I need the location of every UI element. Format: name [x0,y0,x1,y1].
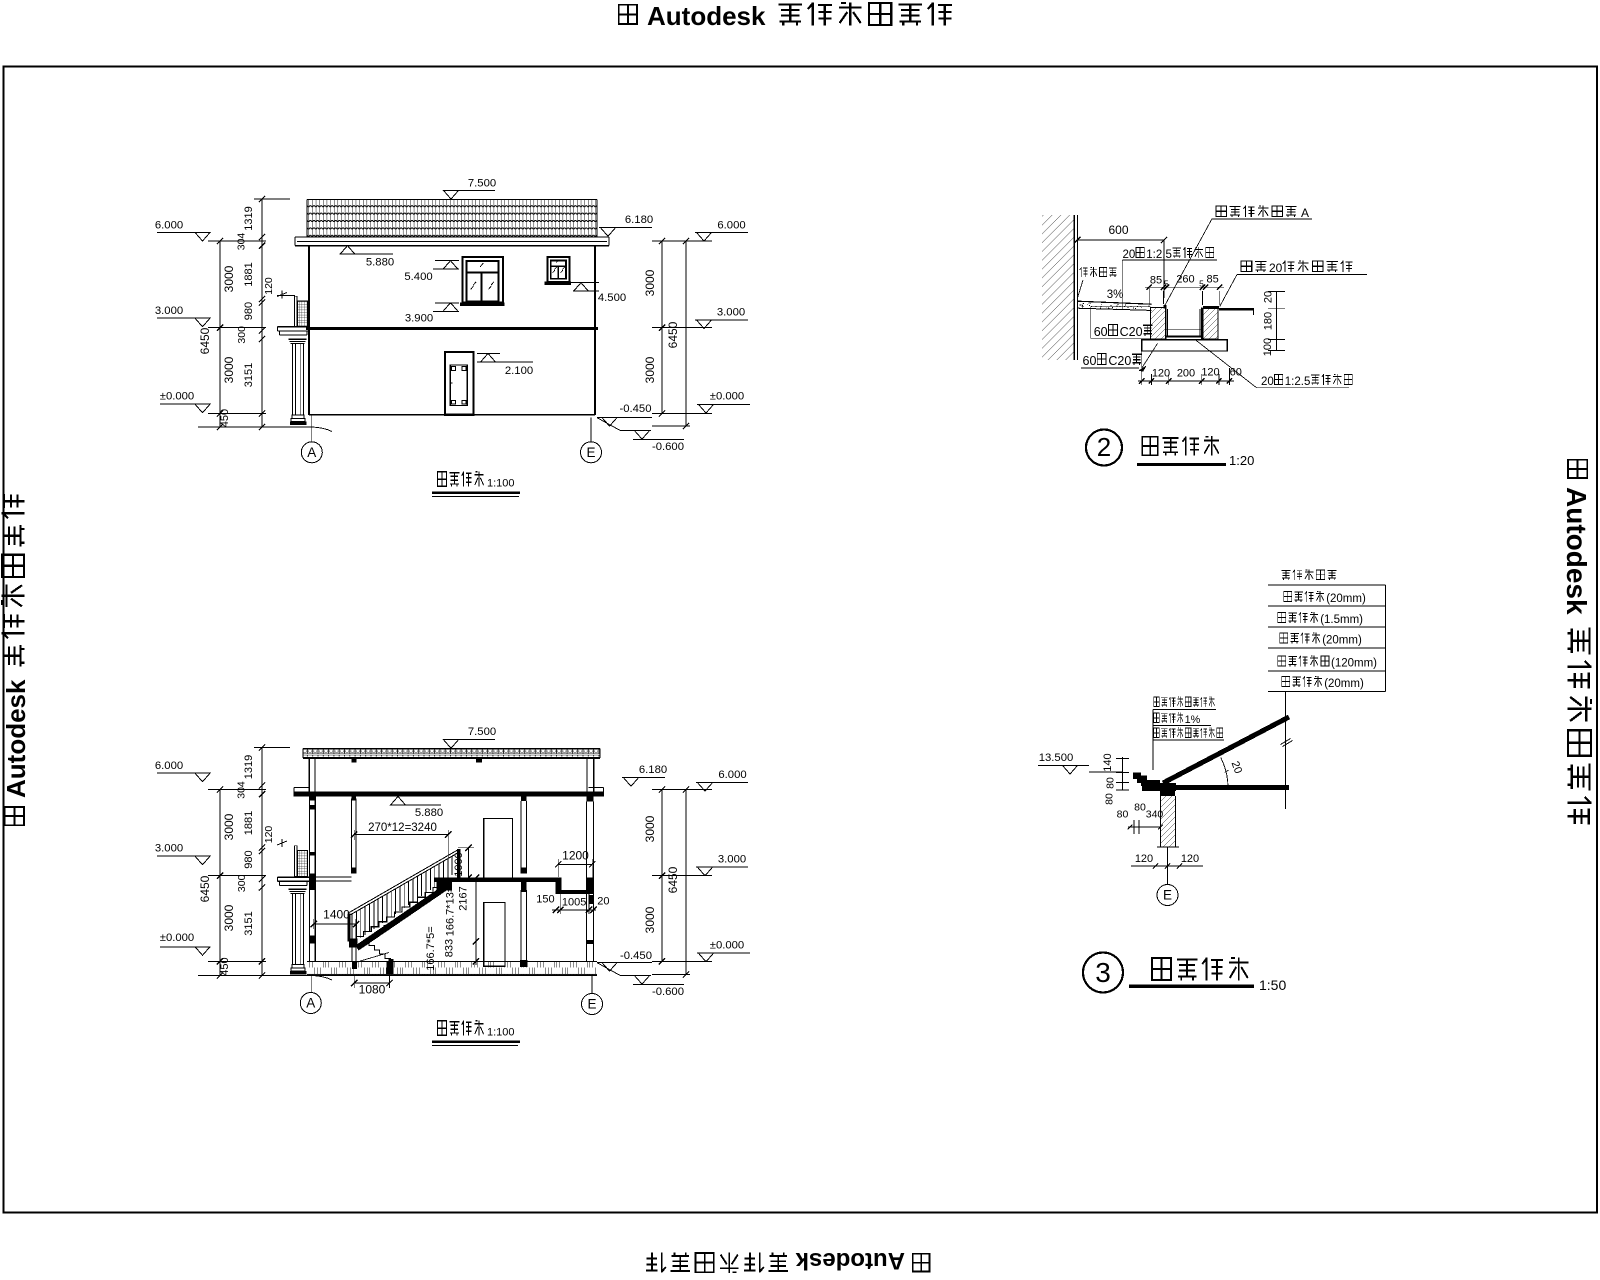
svg-text:6.000: 6.000 [717,220,745,232]
svg-text:60: 60 [1094,325,1108,339]
svg-text:20: 20 [1269,261,1283,275]
svg-text:E: E [586,445,595,460]
svg-text:60: 60 [1083,354,1097,368]
svg-text:(20mm): (20mm) [1322,635,1362,647]
svg-text:1:2.5: 1:2.5 [1146,249,1172,261]
svg-text:±0.000: ±0.000 [160,932,194,944]
svg-text:1:20: 1:20 [1229,453,1254,468]
svg-text:(1.5mm): (1.5mm) [1320,614,1363,626]
svg-text:3000: 3000 [222,356,236,383]
svg-text:3151: 3151 [243,363,255,387]
svg-text:85: 85 [1206,274,1218,286]
svg-text:5.880: 5.880 [415,807,443,819]
svg-text:6.000: 6.000 [155,760,183,772]
svg-text:1:50: 1:50 [1259,977,1286,993]
svg-text:80: 80 [1105,777,1117,789]
svg-text:270*12=3240: 270*12=3240 [368,822,437,834]
svg-text:20: 20 [1263,291,1275,303]
svg-text:6450: 6450 [666,866,680,893]
svg-text:85: 85 [1150,275,1162,287]
svg-text:120: 120 [1135,853,1153,865]
svg-text:6.180: 6.180 [639,764,667,776]
svg-text:304: 304 [236,233,248,251]
svg-text:A: A [306,996,315,1011]
svg-text:3000: 3000 [222,813,236,840]
svg-text:1%: 1% [1185,714,1201,726]
svg-text:6.180: 6.180 [625,214,653,226]
svg-text:7.500: 7.500 [468,178,496,190]
svg-text:A: A [1301,206,1309,220]
svg-text:3151: 3151 [243,911,255,935]
svg-text:(120mm): (120mm) [1331,658,1377,670]
svg-text:1400: 1400 [323,908,350,922]
svg-text:140: 140 [1102,753,1114,771]
svg-text:Autodesk: Autodesk [1,679,31,798]
svg-text:13.500: 13.500 [1039,752,1074,764]
svg-text:1200: 1200 [562,849,589,863]
svg-text:1881: 1881 [243,262,255,286]
svg-text:3000: 3000 [643,356,657,383]
svg-text:1080: 1080 [359,983,386,997]
svg-text:2.100: 2.100 [505,365,533,377]
svg-text:600: 600 [1108,223,1128,237]
svg-text:120: 120 [263,277,275,295]
svg-text:6450: 6450 [198,875,212,902]
svg-text:2167: 2167 [458,886,470,910]
svg-text:120: 120 [1152,368,1170,380]
svg-text:1881: 1881 [243,811,255,835]
svg-text:300: 300 [236,874,248,892]
svg-text:3000: 3000 [222,265,236,292]
svg-text:E: E [1163,888,1172,903]
svg-text:2: 2 [1097,432,1111,462]
svg-text:A: A [307,445,316,460]
svg-text:-0.450: -0.450 [619,403,651,415]
svg-text:3.900: 3.900 [405,313,433,325]
svg-text:1:100: 1:100 [487,478,515,490]
svg-text:3.000: 3.000 [718,854,746,866]
svg-text:(20mm): (20mm) [1324,678,1364,690]
svg-text:Autodesk: Autodesk [1561,487,1592,615]
svg-text:±0.000: ±0.000 [160,391,194,403]
svg-text:3.000: 3.000 [717,307,745,319]
svg-text:1000: 1000 [453,852,465,876]
svg-text:3.000: 3.000 [155,843,183,855]
svg-text:980: 980 [243,302,255,320]
svg-text:5.880: 5.880 [366,257,394,269]
svg-text:304: 304 [236,781,248,799]
svg-text:5: 5 [1199,279,1204,289]
svg-text:6.000: 6.000 [718,769,746,781]
svg-text:-0.600: -0.600 [652,986,684,998]
svg-text:3000: 3000 [643,906,657,933]
svg-text:-0.600: -0.600 [652,441,684,453]
svg-text:1319: 1319 [243,755,255,779]
svg-text:-0.450: -0.450 [620,950,652,962]
svg-text:C20: C20 [1108,354,1131,368]
svg-text:3000: 3000 [222,904,236,931]
svg-text:833: 833 [444,939,456,957]
svg-text:150: 150 [536,894,554,906]
svg-text:3%: 3% [1107,289,1124,301]
svg-text:1319: 1319 [243,206,255,230]
svg-text:6450: 6450 [666,321,680,348]
svg-text:C20: C20 [1120,325,1143,339]
svg-text:±0.000: ±0.000 [710,940,744,952]
svg-text:5.400: 5.400 [404,271,432,283]
svg-text:5: 5 [1164,279,1169,289]
svg-text:7.500: 7.500 [468,726,496,738]
svg-text:20: 20 [597,896,609,908]
svg-text:80: 80 [1117,809,1129,821]
svg-text:200: 200 [1177,368,1195,380]
svg-text:(20mm): (20mm) [1326,593,1366,605]
svg-text:120: 120 [263,826,275,844]
svg-text:80: 80 [1104,793,1116,805]
svg-text:3000: 3000 [643,269,657,296]
svg-text:1:100: 1:100 [487,1027,515,1039]
svg-text:3: 3 [1095,957,1111,988]
svg-text:300: 300 [236,326,248,344]
svg-text:Autodesk: Autodesk [795,1247,905,1274]
svg-text:±0.000: ±0.000 [710,391,744,403]
svg-text:20: 20 [1261,376,1274,388]
svg-text:100: 100 [1262,338,1274,356]
svg-text:120: 120 [1201,367,1219,379]
svg-text:4.500: 4.500 [598,292,626,304]
svg-text:80: 80 [1134,802,1146,814]
svg-text:1005: 1005 [562,897,586,909]
svg-text:6.000: 6.000 [155,220,183,232]
svg-text:450: 450 [219,957,231,975]
svg-text:120: 120 [1181,853,1199,865]
svg-text:3000: 3000 [643,815,657,842]
svg-text:980: 980 [243,850,255,868]
svg-text:Autodesk: Autodesk [647,1,766,31]
svg-text:3.000: 3.000 [155,305,183,317]
svg-text:260: 260 [1176,274,1194,286]
svg-text:E: E [587,997,596,1012]
svg-text:20: 20 [1123,249,1136,261]
svg-text:166.7*13=: 166.7*13= [445,886,457,936]
svg-text:450: 450 [219,409,231,427]
svg-text:180: 180 [1263,312,1275,330]
svg-text:1:2.5: 1:2.5 [1285,376,1311,388]
svg-text:6450: 6450 [198,327,212,354]
